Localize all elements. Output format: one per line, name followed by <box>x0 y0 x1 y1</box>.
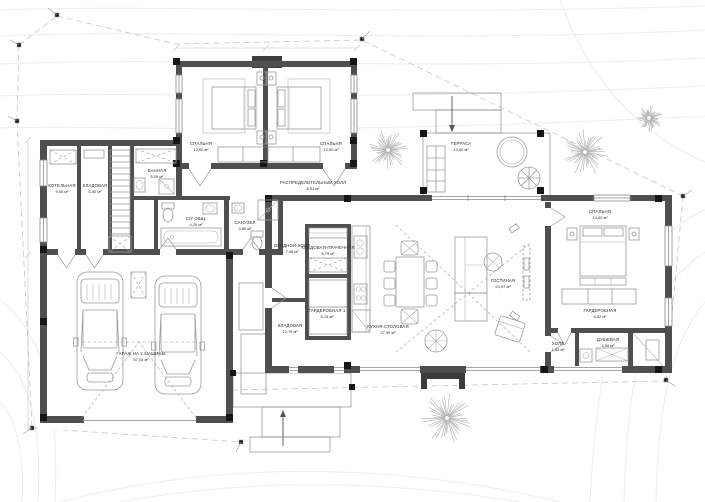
window <box>176 75 182 93</box>
svg-text:6,50 м²: 6,50 м² <box>89 189 103 194</box>
svg-text:5,13 м²: 5,13 м² <box>321 314 335 319</box>
svg-text:С/у общ.: С/у общ. <box>186 216 207 221</box>
room-label-hall-small: Холл1,95 м² <box>552 341 566 352</box>
svg-text:Кладовая-прачечная: Кладовая-прачечная <box>301 245 354 250</box>
svg-text:Кладовая: Кладовая <box>278 323 302 328</box>
room-label-terrace: Терраса13,00 м² <box>451 141 472 152</box>
svg-text:4,50 м²: 4,50 м² <box>602 343 616 348</box>
svg-text:5,79 м²: 5,79 м² <box>322 251 336 256</box>
porch-arrow-icon <box>280 410 286 446</box>
svg-text:27,99 м²: 27,99 м² <box>380 330 396 335</box>
terrace-deck <box>413 93 550 197</box>
svg-text:14,00 м²: 14,00 м² <box>592 215 608 220</box>
svg-text:12,79 м²: 12,79 м² <box>282 329 298 334</box>
svg-text:57,04 м²: 57,04 м² <box>133 357 149 362</box>
tree-icon <box>369 131 408 169</box>
svg-text:Санузел: Санузел <box>235 220 256 225</box>
svg-text:12,00 м²: 12,00 м² <box>193 147 209 152</box>
svg-text:Ванная: Ванная <box>148 168 167 173</box>
window <box>176 99 182 133</box>
window <box>351 75 357 93</box>
svg-text:13,00 м²: 13,00 м² <box>453 147 469 152</box>
svg-text:Гардеробная: Гардеробная <box>584 308 617 313</box>
svg-text:Спальня: Спальня <box>589 209 611 214</box>
svg-text:5,09 м²: 5,09 м² <box>151 174 165 179</box>
svg-text:Кладовая: Кладовая <box>83 183 107 188</box>
room-label-wc-guest: Санузел3,80 м² <box>235 220 256 231</box>
entrance-arrow-icon <box>449 96 455 132</box>
window <box>40 218 47 242</box>
svg-text:4,20 м²: 4,20 м² <box>190 222 204 227</box>
svg-text:Котельная: Котельная <box>48 183 75 188</box>
window <box>594 195 630 201</box>
terrace-sofa <box>427 146 445 192</box>
entry-porch-deck <box>233 373 351 452</box>
svg-text:7,08 м²: 7,08 м² <box>286 249 300 254</box>
svg-text:Душевая: Душевая <box>597 337 619 342</box>
svg-text:3,80 м²: 3,80 м² <box>239 226 253 231</box>
window <box>665 298 672 326</box>
tree-icon <box>564 129 608 173</box>
tree-icon <box>421 393 471 442</box>
svg-text:Терраса: Терраса <box>451 141 472 146</box>
svg-text:Спальня: Спальня <box>190 141 212 146</box>
floor-plan-drawing: Спальня12,00 м² Спальня12,00 м² Распреде… <box>0 0 705 502</box>
svg-text:Спальня: Спальня <box>320 141 342 146</box>
site-marker <box>48 8 59 17</box>
svg-text:12,00 м²: 12,00 м² <box>323 147 339 152</box>
svg-text:Холл: Холл <box>552 341 564 346</box>
svg-text:Гостиная: Гостиная <box>491 278 515 283</box>
svg-text:6,62 м²: 6,62 м² <box>594 314 608 319</box>
floor-plan-canvas: Спальня12,00 м² Спальня12,00 м² Распреде… <box>0 0 705 502</box>
window <box>40 160 47 186</box>
ceiling-light <box>425 330 447 352</box>
svg-text:Распределительный холл: Распределительный холл <box>280 180 346 185</box>
svg-text:23,97 м²: 23,97 м² <box>495 284 511 289</box>
hot-tub <box>497 137 527 167</box>
terrace-table <box>518 167 540 189</box>
window <box>351 99 357 133</box>
site-marker <box>23 426 34 434</box>
svg-text:Гараж на 2 машины: Гараж на 2 машины <box>116 351 165 356</box>
side-entrance-mat <box>239 283 266 394</box>
svg-text:1,95 м²: 1,95 м² <box>552 347 566 352</box>
svg-text:9,00 м²: 9,00 м² <box>56 189 70 194</box>
site-marker <box>681 190 692 198</box>
window <box>665 226 672 266</box>
svg-text:8,51 м²: 8,51 м² <box>307 186 321 191</box>
site-marker <box>10 40 21 47</box>
svg-text:Кухня-столовая: Кухня-столовая <box>367 324 408 329</box>
svg-text:Гардеробная 1: Гардеробная 1 <box>309 308 346 313</box>
